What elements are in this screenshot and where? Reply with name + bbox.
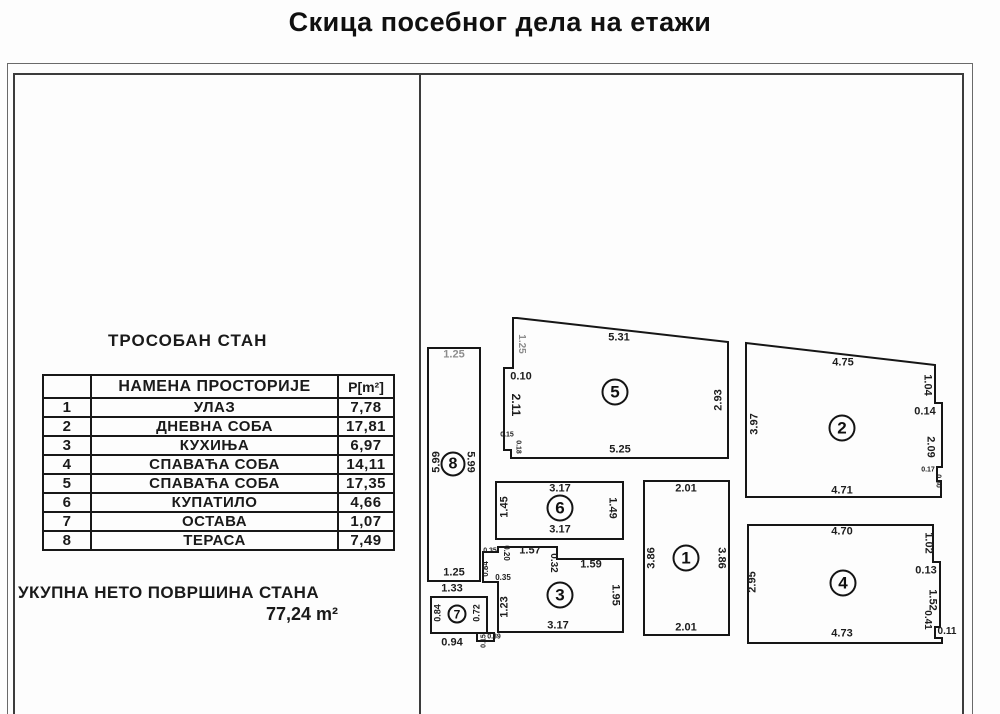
dimension-label: 0.30 — [935, 474, 942, 488]
room-number-marker: 2 — [829, 415, 856, 442]
dimension-label: 0.13 — [915, 566, 936, 577]
dimension-label: 2.95 — [748, 571, 759, 592]
dimension-label: 1.33 — [441, 584, 462, 595]
room-number-marker: 5 — [602, 379, 629, 406]
dimension-label: 0.94 — [441, 638, 462, 649]
dimension-label: 0.17 — [921, 467, 935, 474]
dimension-label: 1.49 — [607, 497, 618, 518]
dimension-label: 2.09 — [925, 436, 936, 457]
room-number-marker: 8 — [441, 452, 466, 477]
room-number-marker: 1 — [673, 545, 700, 572]
dimension-label: 2.01 — [675, 484, 696, 495]
dimension-label: 3.17 — [549, 525, 570, 536]
dimension-label: 1.25 — [443, 350, 464, 361]
dimension-label: 0.39 — [487, 634, 501, 641]
dimension-label: 1.52 — [927, 589, 938, 610]
dimension-label: 0.35 — [483, 548, 497, 555]
dimension-label: 1.04 — [922, 374, 933, 395]
dimension-label: 4.70 — [831, 527, 852, 538]
dimension-label: 3.97 — [750, 413, 761, 434]
dimension-label: 1.23 — [500, 596, 511, 617]
dimension-label: 0.10 — [510, 372, 531, 383]
dimension-label: 5.31 — [608, 333, 629, 344]
dimension-label: 4.73 — [831, 629, 852, 640]
dimension-label: 3.17 — [547, 621, 568, 632]
dimension-label: 2.11 — [510, 394, 522, 417]
dimension-label: 1.57 — [519, 546, 540, 557]
dimension-label: 1.59 — [580, 560, 601, 571]
dimension-label: 0.11 — [938, 627, 957, 637]
dimension-label: 0.72 — [473, 604, 482, 622]
dimension-label: 3.86 — [647, 547, 658, 568]
dimension-label: 0.41 — [922, 610, 932, 629]
dimension-label: 2.93 — [714, 389, 725, 410]
dimension-label: 0.84 — [482, 561, 490, 577]
dimension-label: 2.01 — [675, 623, 696, 634]
dimension-label: 5.25 — [609, 445, 630, 456]
dimension-label: 0.15 — [500, 432, 514, 439]
dimension-label: 3.17 — [549, 484, 570, 495]
dimension-label: 4.71 — [831, 486, 852, 497]
dimension-label: 1.02 — [923, 532, 934, 553]
dimension-label: 0.18 — [515, 440, 522, 454]
room-number-marker: 7 — [448, 605, 467, 624]
dimension-label: 1.95 — [610, 584, 621, 605]
dimension-label: 1.25 — [443, 568, 464, 579]
dimension-label: 0.14 — [914, 407, 935, 418]
dimension-label: 0.84 — [434, 604, 443, 622]
dimension-label: 4.75 — [832, 358, 853, 369]
sketch-page: Скица посебног дела на етажи ТРОСОБАН СТ… — [0, 0, 1000, 714]
dimension-label: 3.86 — [716, 547, 727, 568]
dimension-label: 1.45 — [500, 496, 511, 517]
room-number-marker: 4 — [830, 570, 857, 597]
room-number-marker: 6 — [547, 495, 574, 522]
dimension-label: 5.99 — [465, 451, 476, 472]
room-number-marker: 3 — [547, 582, 574, 609]
dimension-label: 0.35 — [495, 574, 511, 582]
dimension-label: 1.25 — [516, 334, 526, 353]
dimension-label: 0.32 — [548, 553, 558, 572]
dimension-label: 0.20 — [502, 545, 510, 561]
